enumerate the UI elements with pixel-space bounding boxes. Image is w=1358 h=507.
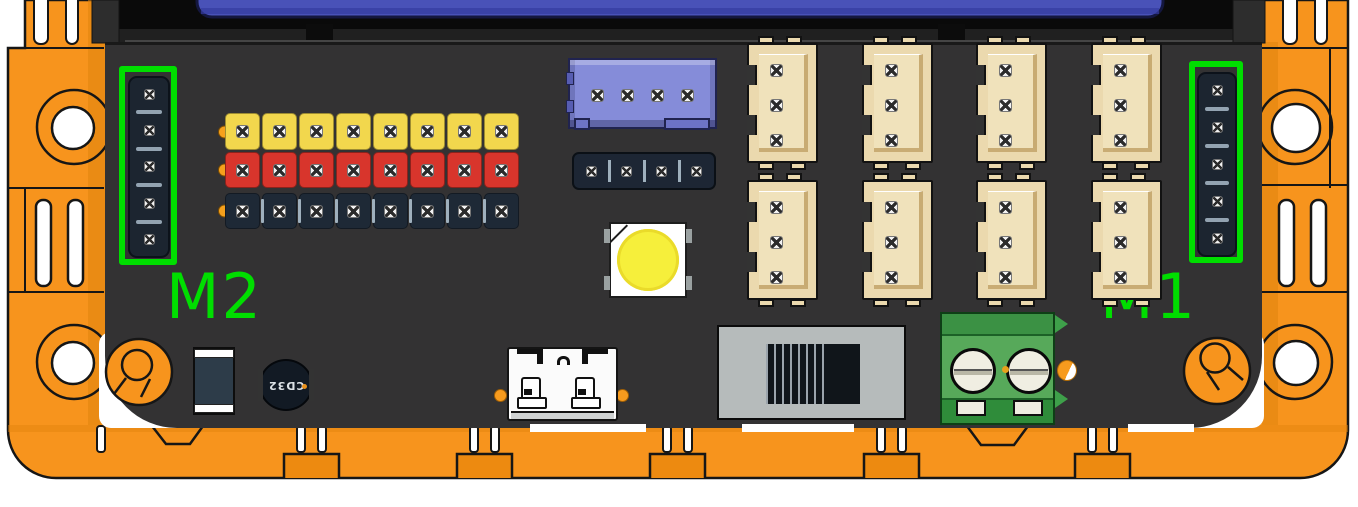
servo-port-connector [862,43,933,163]
connector-tab [873,162,889,170]
pin-pad [421,205,434,218]
power-switch [717,325,906,420]
pin-pad [384,205,397,218]
corner-standoff-right [1184,338,1250,404]
connector-face [759,191,808,289]
rgb-led [609,222,687,298]
connector-notch [1091,202,1101,222]
pcb-gap [530,424,646,432]
connector-tab [758,173,774,181]
connector-tab [905,299,921,307]
connector-notch [1091,65,1101,85]
pin-pad [770,99,783,112]
gpio-pin-cell [262,193,297,229]
connector-step [664,118,710,130]
pin-pad [999,236,1012,249]
connector-notch [976,202,986,222]
gpio-pin-cell [299,113,334,150]
pin-pad [273,205,286,218]
buzzer-label: CD32 [268,379,305,392]
recess-notch [306,24,333,40]
pin-pad [310,205,323,218]
pin-pad [495,125,508,138]
connector-tab [790,299,806,307]
gpio-pin-cell [262,113,297,150]
connector-tab [1015,36,1031,44]
pin-pad [347,125,360,138]
pin-pad [458,125,471,138]
connector-tab [987,162,1003,170]
pin-pad [273,164,286,177]
connector-face [988,54,1037,152]
pin-pad [273,125,286,138]
pin-pad [1114,134,1127,147]
pin-pad [770,271,783,284]
pin-pad [885,64,898,77]
pin-pad [495,205,508,218]
pin-pad [999,99,1012,112]
led-pin [686,276,692,290]
pcb-gap [742,424,854,432]
connector-tab [1015,173,1031,181]
corner-standoff-left [106,339,172,405]
connector-tab [987,299,1003,307]
aux-pin-cell [679,154,714,188]
pin-pad [458,164,471,177]
pin-pad [1114,201,1127,214]
connector-tab [786,36,802,44]
connector-notch [747,65,757,85]
connector-tab [1102,173,1118,181]
gpio-pin-cell [299,193,334,229]
pin-pad [384,164,397,177]
connector-tab [758,299,774,307]
connector-face [1103,54,1152,152]
gpio-pin-cell [225,113,260,150]
gpio-pin-cell [336,193,371,229]
led-lens [617,229,679,291]
connector-notch [747,202,757,222]
connector-tab [1102,162,1118,170]
recess-step-right [1233,0,1265,43]
diode-band [194,404,234,413]
usb-shield-hook [582,349,588,364]
i2c-connector [568,58,717,129]
connector-tab [1130,36,1146,44]
blue-insert [197,0,1163,17]
servo-port-connector [1091,43,1162,163]
pin-pad [236,164,249,177]
pin-pad [347,164,360,177]
pin-pad [236,125,249,138]
pin-pad [999,134,1012,147]
gpio-pin-cell [373,193,408,229]
connector-tab [873,173,889,181]
connector-notch [862,115,872,135]
gpio-pin-cell [373,152,408,188]
pin-pad [621,166,632,177]
diode [193,347,235,415]
gpio-row-ground [225,193,519,229]
servo-port-connector [747,180,818,300]
m2-highlight-box [119,66,177,265]
connector-tab [901,173,917,181]
usb-lip [511,411,614,419]
usb-shield-arch [557,356,570,365]
connector-tab [1102,36,1118,44]
pin-pad [495,164,508,177]
pin-pad [421,125,434,138]
pin-pad [770,236,783,249]
gpio-pin-cell [262,152,297,188]
led-pin [604,229,610,243]
connector-face [874,54,923,152]
connector-step [574,118,590,130]
connector-notch [1091,252,1101,272]
connector-tab [758,162,774,170]
connector-tab [987,173,1003,181]
connector-notch [862,202,872,222]
pin-pad [999,64,1012,77]
gpio-pin-cell [299,152,334,188]
gpio-pin-cell [410,193,445,229]
usb-shield-pin [521,377,541,407]
terminal-side-tab [1055,315,1068,333]
aux-pin-cell [644,154,679,188]
usb-shield-hook [537,349,543,364]
pin-pad [651,89,664,102]
aux-pin-cell [609,154,644,188]
connector-tab [786,173,802,181]
pin-pad [310,125,323,138]
connector-tab [1019,299,1035,307]
recess-step-left [92,0,119,43]
connector-notch [566,72,574,85]
gpio-pin-cell [484,193,519,229]
gpio-pin-cell [336,152,371,188]
pin-pad [621,89,634,102]
pin-pad [384,125,397,138]
gpio-pin-cell [447,152,482,188]
connector-tab [758,36,774,44]
led-pin [604,276,610,290]
buzzer-dot [302,384,307,389]
connector-tab [901,36,917,44]
pin-pad [885,99,898,112]
terminal-screw [950,348,996,394]
pin-pad [1114,271,1127,284]
pin-pad [885,271,898,284]
pin-pad [770,134,783,147]
connector-tab [987,36,1003,44]
pin-pad [656,166,667,177]
connector-face [759,54,808,152]
terminal-wire-slot [1013,400,1043,416]
aux-pin-cell [574,154,609,188]
pin-pad [681,89,694,102]
terminal-top-band [942,314,1053,336]
pin-pad [1114,236,1127,249]
connector-tab [1019,162,1035,170]
aux-header [572,152,716,190]
pin-pad [458,205,471,218]
board-render: M2 M1 CD32 [0,0,1358,507]
gpio-row-power [225,152,519,188]
pcb-gap [1128,424,1194,432]
pin-pad [421,164,434,177]
connector-notch [747,115,757,135]
m1-highlight-box [1189,61,1243,263]
connector-notch [862,252,872,272]
servo-port-connector [976,180,1047,300]
terminal-screw [1006,348,1052,394]
gpio-pin-cell [410,152,445,188]
gpio-row-signal [225,113,519,150]
connector-tab [1130,173,1146,181]
servo-port-connector [747,43,818,163]
pin-pad [999,271,1012,284]
connector-notch [976,65,986,85]
led-pin [686,229,692,243]
connector-tab [905,162,921,170]
recess-notch [938,24,965,40]
terminal-side-tab [1055,390,1068,408]
switch-slider-knob [766,344,824,404]
pin-pad [1114,64,1127,77]
gpio-pin-cell [447,113,482,150]
servo-port-connector [862,180,933,300]
gpio-pin-cell [484,113,519,150]
connector-face [1103,191,1152,289]
gpio-pin-cell [447,193,482,229]
connector-notch [976,115,986,135]
pin-pad [770,64,783,77]
pin-pad [236,205,249,218]
gpio-pin-cell [225,193,260,229]
connector-tab [1134,299,1150,307]
m2-label: M2 [166,266,263,328]
usb-solder-lug [494,389,507,402]
connector-face [988,191,1037,289]
connector-tab [790,162,806,170]
micro-usb-port [507,347,618,421]
pin-pad [770,201,783,214]
pin-pad [691,166,702,177]
terminal-wire-slot [956,400,986,416]
pin-pad [310,164,323,177]
servo-port-connector [1091,180,1162,300]
connector-notch [747,252,757,272]
connector-notch [976,252,986,272]
diode-band [194,349,234,358]
pin-pad [1114,99,1127,112]
pin-pad [885,201,898,214]
connector-tab [873,36,889,44]
power-led [1057,360,1077,381]
connector-notch [1091,115,1101,135]
usb-shield-pin [575,377,595,407]
pin-pad [999,201,1012,214]
gpio-pin-cell [336,113,371,150]
pin-pad [591,89,604,102]
servo-port-connector [976,43,1047,163]
gpio-pin-cell [225,152,260,188]
terminal-dot [1002,366,1009,373]
connector-tab [873,299,889,307]
pin-pad [586,166,597,177]
gpio-pin-cell [373,113,408,150]
power-terminal-block [940,312,1055,425]
connector-notch [862,65,872,85]
buzzer: CD32 [259,359,313,411]
gpio-header-block [219,108,529,238]
connector-tab [1134,162,1150,170]
pin-pad [347,205,360,218]
connector-face [874,191,923,289]
connector-tab [1102,299,1118,307]
pin-pad [885,134,898,147]
gpio-pin-cell [410,113,445,150]
pin-pad [885,236,898,249]
gpio-pin-cell [484,152,519,188]
i2c-pins [570,89,715,102]
